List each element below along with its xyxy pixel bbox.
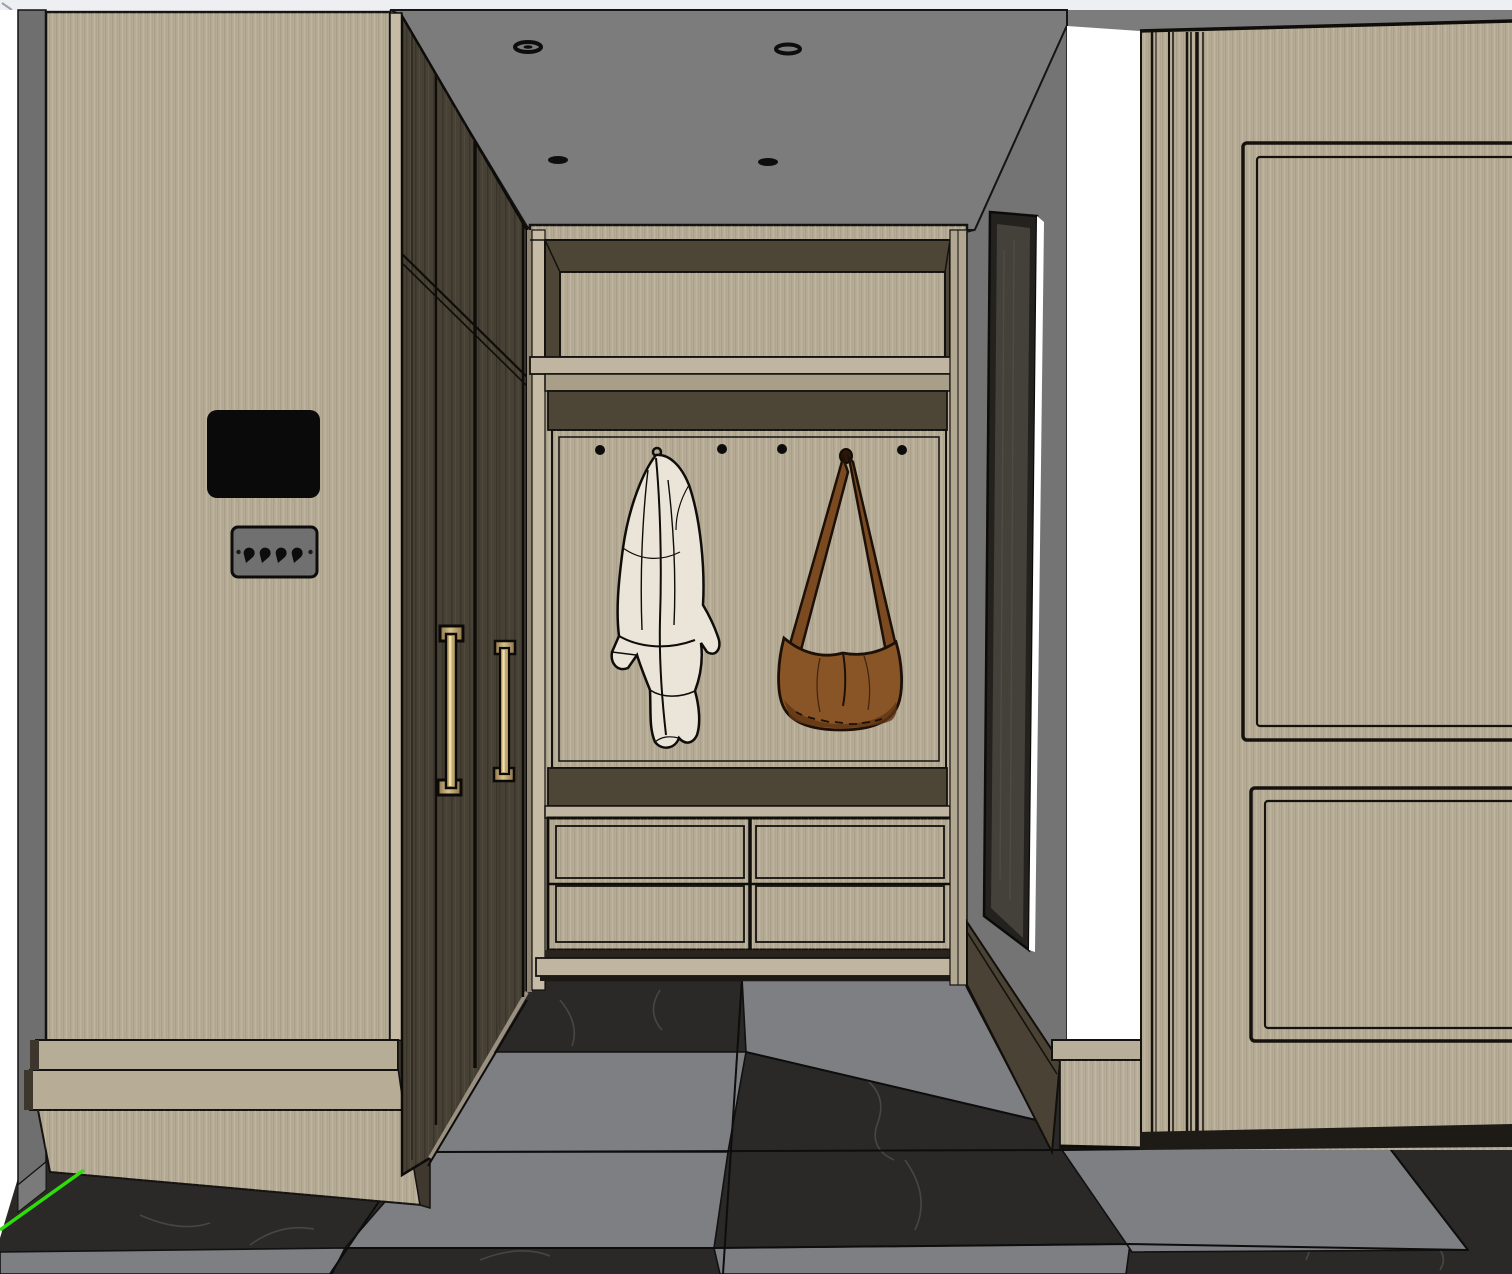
screw-icon (308, 550, 312, 554)
coat-hook-icon[interactable] (717, 444, 727, 454)
drawer-area-bevel (548, 768, 947, 806)
unit-plinth-recess (545, 950, 950, 958)
wood-grain (46, 12, 390, 1042)
upper-cabinet[interactable] (545, 240, 950, 360)
gray-tile (714, 1244, 1130, 1274)
plinth-step (36, 1040, 398, 1070)
left-cabinet-corner-edge (390, 13, 402, 1043)
light-switch-plate[interactable] (232, 527, 317, 577)
coat-hook-icon[interactable] (777, 444, 787, 454)
wood-grain (560, 272, 945, 357)
viewport-canvas[interactable] (0, 0, 1512, 1274)
brass-highlight (449, 636, 452, 786)
entry-door-wall (1140, 21, 1512, 1150)
framed-mirror[interactable] (984, 212, 1044, 952)
unit-plinth (536, 958, 962, 976)
downlight-icon (524, 45, 533, 49)
doorway-opening (1067, 26, 1143, 1047)
drawer-bank[interactable] (548, 818, 952, 950)
shelf-band (530, 357, 967, 374)
coat-hook-icon[interactable] (595, 445, 605, 455)
gray-tile (0, 1248, 345, 1274)
unit-left-stile (532, 230, 545, 990)
plinth-return (30, 1040, 39, 1070)
doorway-plinth-block (1052, 1040, 1148, 1148)
mudroom-unit[interactable] (527, 225, 967, 992)
coat-area-bevel (548, 391, 947, 430)
left-background-gap (0, 10, 18, 1238)
screw-icon (236, 550, 240, 554)
downlight-icon (758, 158, 778, 166)
drawer-top-rail (545, 806, 950, 818)
viewport-top-strip (0, 0, 1512, 10)
unit-plinth-shadow (540, 976, 958, 981)
wood-grain (1060, 1060, 1143, 1148)
coat-hook-icon[interactable] (897, 445, 907, 455)
plinth-return (24, 1070, 33, 1110)
render-viewport[interactable] (0, 0, 1512, 1274)
left-wall-edge (18, 10, 46, 1185)
unit-left-gap (527, 230, 532, 992)
brass-highlight (503, 650, 505, 772)
left-cabinet[interactable] (24, 12, 430, 1208)
wall-tablet[interactable] (207, 410, 320, 498)
plinth-step (30, 1070, 404, 1110)
downlight-icon (548, 156, 568, 164)
shelf-shadow-band (545, 374, 950, 391)
